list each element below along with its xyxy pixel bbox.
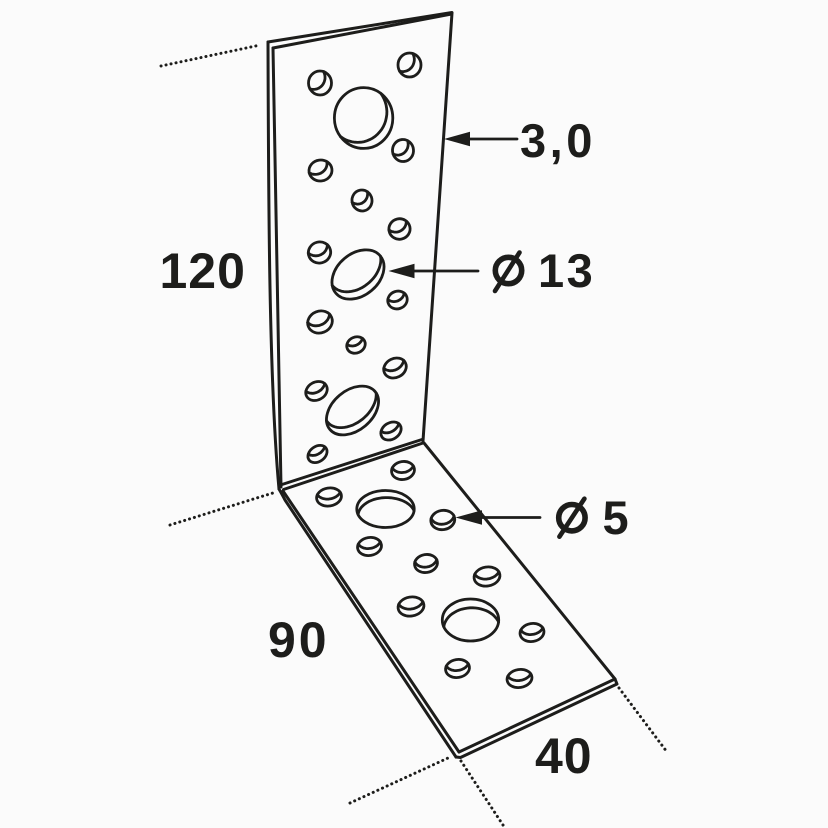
svg-text:5: 5 [603, 491, 632, 544]
svg-text:3,0: 3,0 [520, 114, 596, 167]
svg-text:13: 13 [538, 244, 595, 297]
svg-text:90: 90 [268, 612, 330, 668]
svg-text:40: 40 [535, 728, 593, 784]
svg-text:120: 120 [160, 243, 246, 299]
